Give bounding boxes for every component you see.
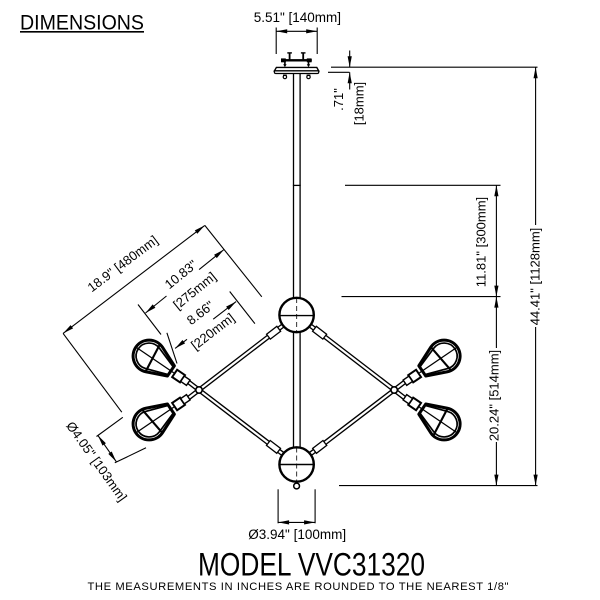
svg-text:MODEL VVC31320: MODEL VVC31320 bbox=[198, 547, 425, 583]
svg-text:[18mm]: [18mm] bbox=[352, 82, 367, 125]
svg-text:20.24" [514mm]: 20.24" [514mm] bbox=[487, 350, 502, 441]
svg-text:Ø3.94" [100mm]: Ø3.94" [100mm] bbox=[248, 527, 346, 542]
svg-text:44.41" [1128mm]: 44.41" [1128mm] bbox=[527, 228, 542, 326]
svg-text:11.81" [300mm]: 11.81" [300mm] bbox=[474, 197, 489, 287]
svg-text:THE MEASUREMENTS IN INCHES ARE: THE MEASUREMENTS IN INCHES ARE ROUNDED T… bbox=[88, 581, 509, 593]
svg-text:DIMENSIONS: DIMENSIONS bbox=[20, 11, 144, 35]
svg-text:.71": .71" bbox=[331, 88, 346, 111]
svg-text:5.51" [140mm]: 5.51" [140mm] bbox=[254, 10, 341, 25]
